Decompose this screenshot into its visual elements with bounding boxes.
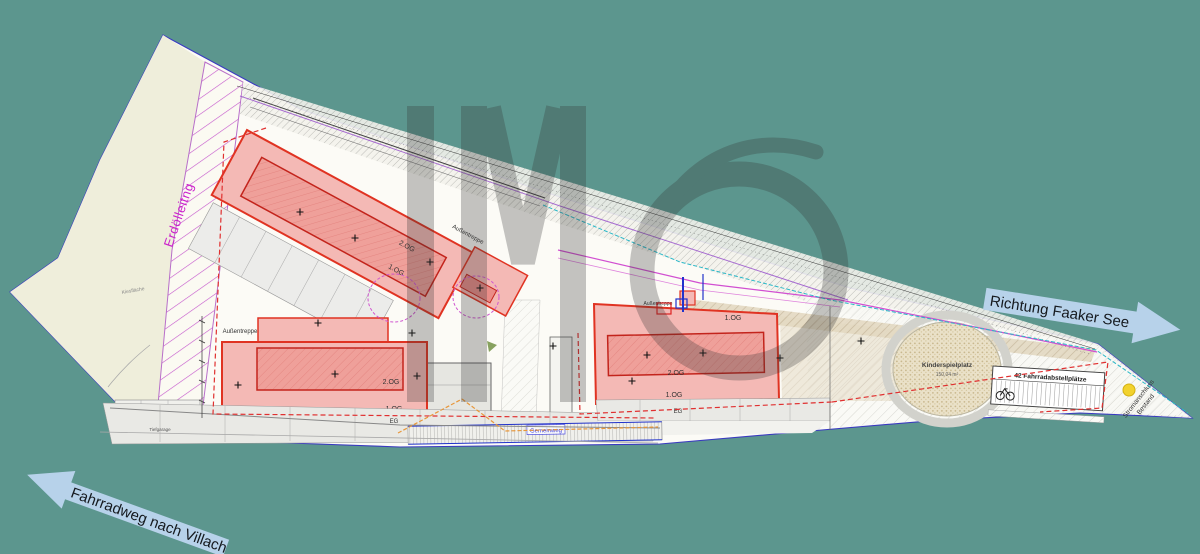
building-2-floor-2og: 2.OG (383, 379, 400, 386)
building-2-core (257, 348, 403, 390)
path-label: Gemeinweg (530, 428, 562, 435)
building-2-stair-label: Außentreppe (223, 329, 258, 335)
building-3-floor-1og-top: 1.OG (725, 315, 742, 322)
power-connection-dot (1123, 384, 1135, 396)
driveway-strip (501, 300, 540, 424)
building-3-floor-1og: 1.OG (666, 392, 683, 399)
site-plan-svg: Kiesfläche Erdölleitng 2.OG 1.OG Außentr… (0, 0, 1200, 554)
building-3-floor-2og: 2.OG (668, 370, 685, 377)
playground-label: Kinderspielplatz (922, 362, 973, 369)
garage-label-1: Tiefgarage (149, 427, 171, 432)
building-2-top-strip (258, 318, 388, 342)
site-plan-screenshot: Kiesfläche Erdölleitng 2.OG 1.OG Außentr… (0, 0, 1200, 554)
playground-area-label: 150,04 m² (936, 372, 959, 378)
playground: Kinderspielplatz 150,04 m² (886, 315, 1008, 423)
